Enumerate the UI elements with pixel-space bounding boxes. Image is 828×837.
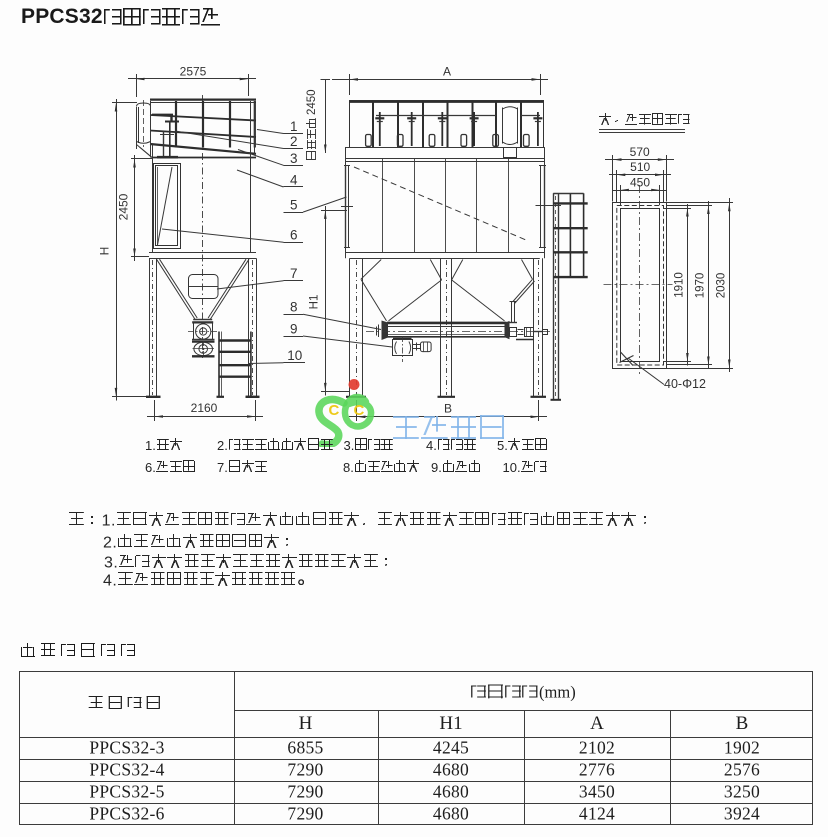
svg-text:H: H — [98, 247, 112, 256]
svg-text:570: 570 — [630, 145, 650, 159]
svg-text:450: 450 — [630, 176, 650, 190]
svg-text:2160: 2160 — [191, 401, 218, 415]
svg-text:1910: 1910 — [674, 272, 686, 298]
svg-text:1: 1 — [290, 119, 298, 134]
svg-text:510: 510 — [630, 160, 650, 174]
svg-text:3: 3 — [290, 151, 298, 166]
svg-text:1970: 1970 — [695, 273, 707, 299]
svg-text:40-Φ12: 40-Φ12 — [664, 377, 706, 391]
svg-text:2575: 2575 — [180, 65, 207, 79]
svg-text:C: C — [354, 402, 365, 419]
svg-text:10: 10 — [287, 348, 302, 363]
svg-text:4: 4 — [290, 173, 298, 188]
svg-text:A: A — [443, 65, 451, 79]
svg-text:2: 2 — [290, 134, 298, 149]
svg-text:8: 8 — [290, 300, 298, 315]
svg-text:6: 6 — [290, 228, 298, 243]
svg-text:5: 5 — [290, 198, 298, 213]
svg-text:H1: H1 — [309, 295, 321, 310]
svg-text:2450: 2450 — [117, 193, 131, 220]
svg-text:9: 9 — [290, 322, 298, 337]
svg-text:C: C — [329, 402, 340, 419]
svg-text:7: 7 — [290, 266, 298, 281]
svg-text:2030: 2030 — [716, 273, 728, 299]
